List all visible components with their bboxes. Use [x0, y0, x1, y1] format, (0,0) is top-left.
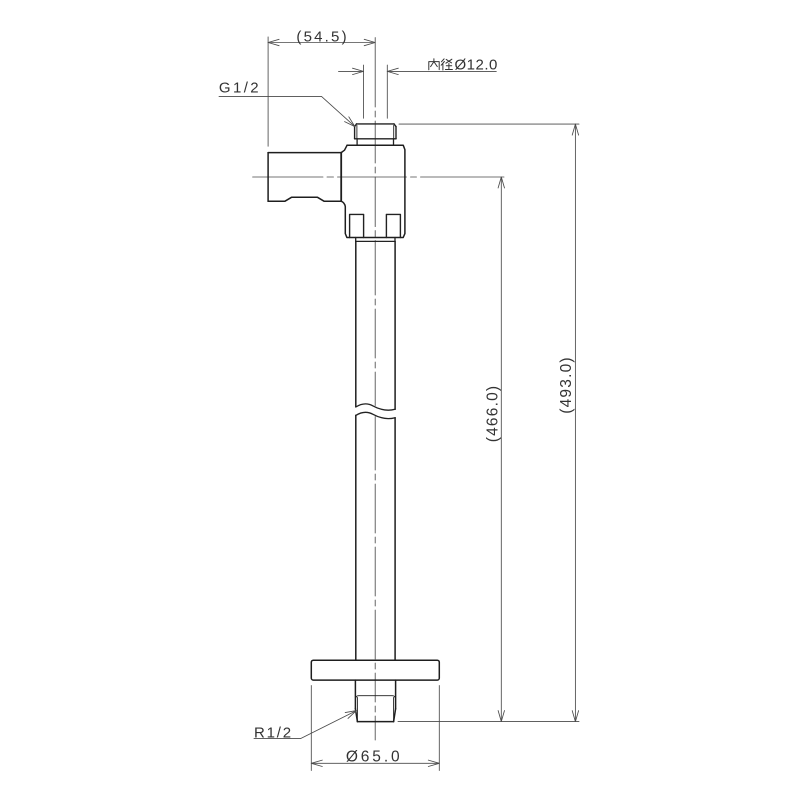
- svg-text:(493.0): (493.0): [558, 356, 575, 414]
- svg-text:(54.5): (54.5): [296, 28, 348, 45]
- svg-text:Ø65.0: Ø65.0: [346, 748, 403, 765]
- svg-text:Ø12.0: Ø12.0: [455, 57, 498, 74]
- svg-text:G1/2: G1/2: [219, 80, 261, 97]
- svg-text:(466.0): (466.0): [485, 385, 502, 443]
